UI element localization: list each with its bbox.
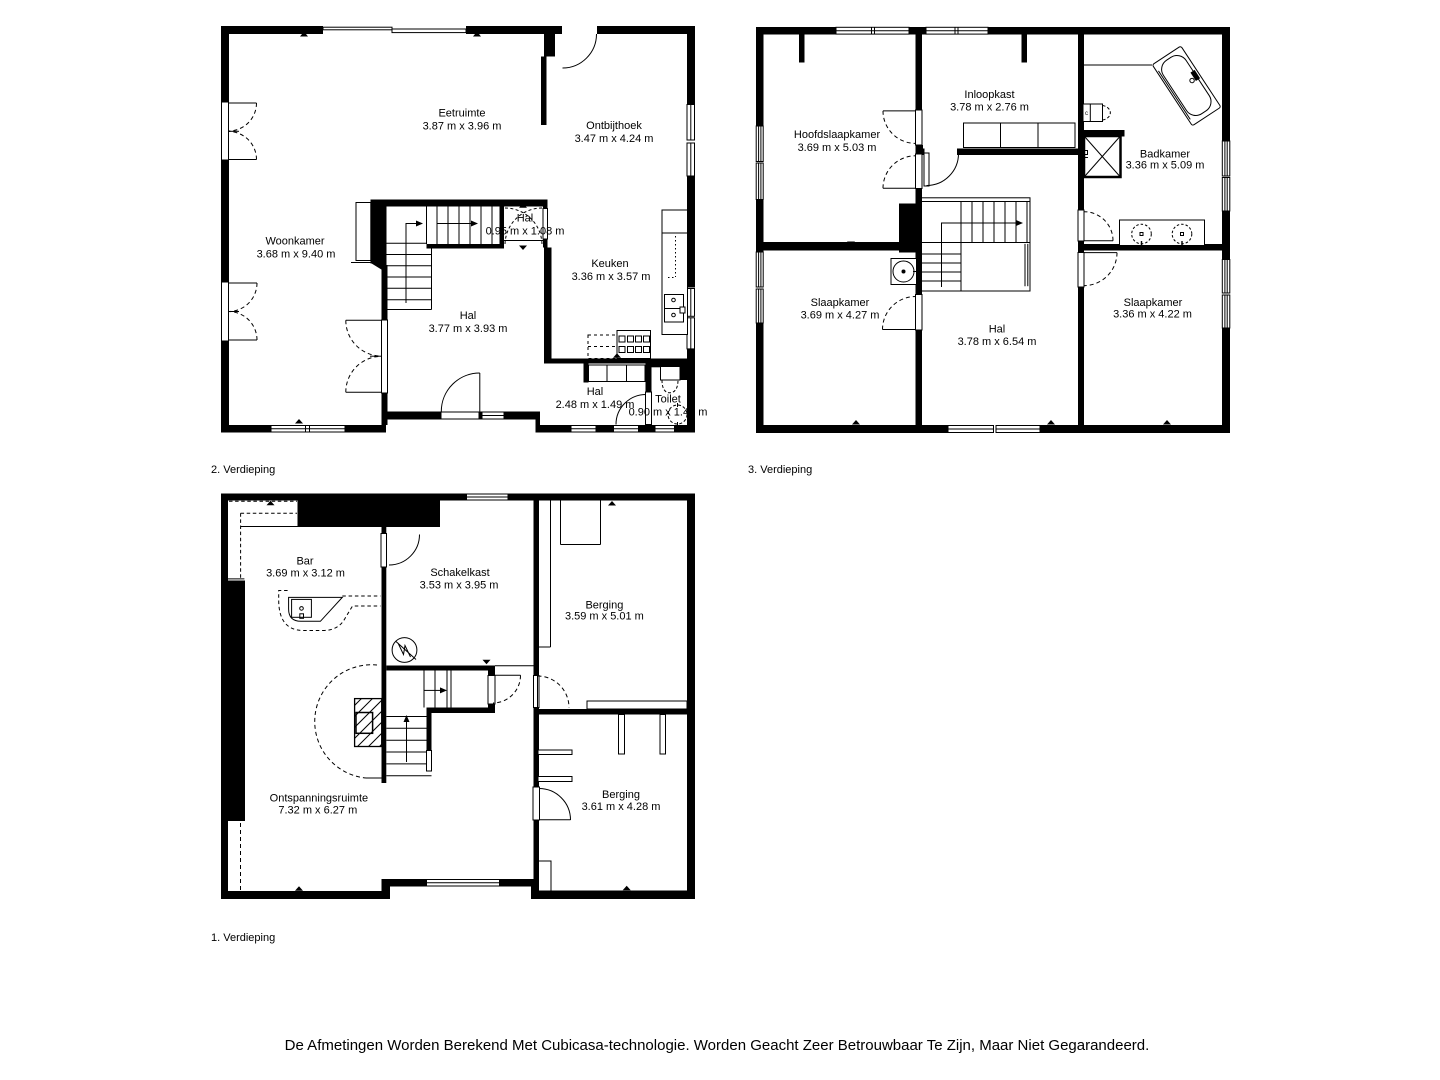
svg-text:Ontbijthoek: Ontbijthoek (586, 120, 642, 132)
svg-text:Berging: Berging (585, 599, 623, 611)
svg-text:Inloopkast: Inloopkast (964, 89, 1014, 101)
svg-text:Slaapkamer: Slaapkamer (811, 297, 870, 309)
svg-text:Ontspanningsruimte: Ontspanningsruimte (270, 793, 368, 805)
svg-text:0.95 m x 1.08 m: 0.95 m x 1.08 m (486, 226, 565, 238)
svg-text:Woonkamer: Woonkamer (265, 236, 324, 248)
svg-text:3.78 m x 6.54 m: 3.78 m x 6.54 m (958, 336, 1037, 348)
svg-text:Hal: Hal (587, 386, 604, 398)
svg-text:3.36 m x 3.57 m: 3.36 m x 3.57 m (572, 271, 651, 283)
svg-text:3.36 m x 4.22 m: 3.36 m x 4.22 m (1113, 309, 1192, 321)
svg-text:Hal: Hal (460, 310, 477, 322)
svg-text:De Afmetingen Worden Berekend: De Afmetingen Worden Berekend Met Cubica… (285, 1037, 1150, 1054)
svg-text:2. Verdieping: 2. Verdieping (211, 464, 275, 476)
svg-text:3.69 m x 3.12 m: 3.69 m x 3.12 m (266, 567, 345, 579)
svg-text:3.53 m x 3.95 m: 3.53 m x 3.95 m (420, 579, 499, 591)
svg-text:3. Verdieping: 3. Verdieping (748, 464, 812, 476)
svg-text:3.47 m x 4.24 m: 3.47 m x 4.24 m (575, 133, 654, 145)
svg-text:3.69 m x 4.27 m: 3.69 m x 4.27 m (801, 310, 880, 322)
svg-text:3.68 m x 9.40 m: 3.68 m x 9.40 m (257, 249, 336, 261)
svg-text:3.36 m x 5.09 m: 3.36 m x 5.09 m (1126, 160, 1205, 172)
svg-text:Eetruimte: Eetruimte (438, 108, 485, 120)
svg-text:Bar: Bar (296, 556, 313, 568)
svg-text:Hoofdslaapkamer: Hoofdslaapkamer (794, 129, 881, 141)
svg-text:Keuken: Keuken (591, 258, 628, 270)
svg-text:7.32 m x 6.27 m: 7.32 m x 6.27 m (278, 805, 357, 817)
svg-text:3.77 m x 3.93 m: 3.77 m x 3.93 m (429, 323, 508, 335)
svg-text:0.90 m x 1.40 m: 0.90 m x 1.40 m (629, 407, 708, 419)
svg-text:3.69 m x 5.03 m: 3.69 m x 5.03 m (798, 142, 877, 154)
svg-text:Hal: Hal (517, 213, 534, 225)
svg-text:Berging: Berging (602, 789, 640, 801)
svg-text:3.59 m x 5.01 m: 3.59 m x 5.01 m (565, 611, 644, 623)
svg-text:c: c (1085, 111, 1088, 117)
svg-text:Badkamer: Badkamer (1140, 148, 1190, 160)
svg-text:3.61 m x 4.28 m: 3.61 m x 4.28 m (582, 801, 661, 813)
svg-text:Hal: Hal (989, 324, 1006, 336)
svg-text:Toilet: Toilet (655, 394, 681, 406)
svg-text:1. Verdieping: 1. Verdieping (211, 932, 275, 944)
svg-text:3.78 m x 2.76 m: 3.78 m x 2.76 m (950, 102, 1029, 114)
svg-text:2.48 m x 1.49 m: 2.48 m x 1.49 m (556, 399, 635, 411)
svg-text:Slaapkamer: Slaapkamer (1124, 297, 1183, 309)
svg-text:3.87 m x 3.96 m: 3.87 m x 3.96 m (423, 121, 502, 133)
svg-text:Schakelkast: Schakelkast (430, 567, 489, 579)
